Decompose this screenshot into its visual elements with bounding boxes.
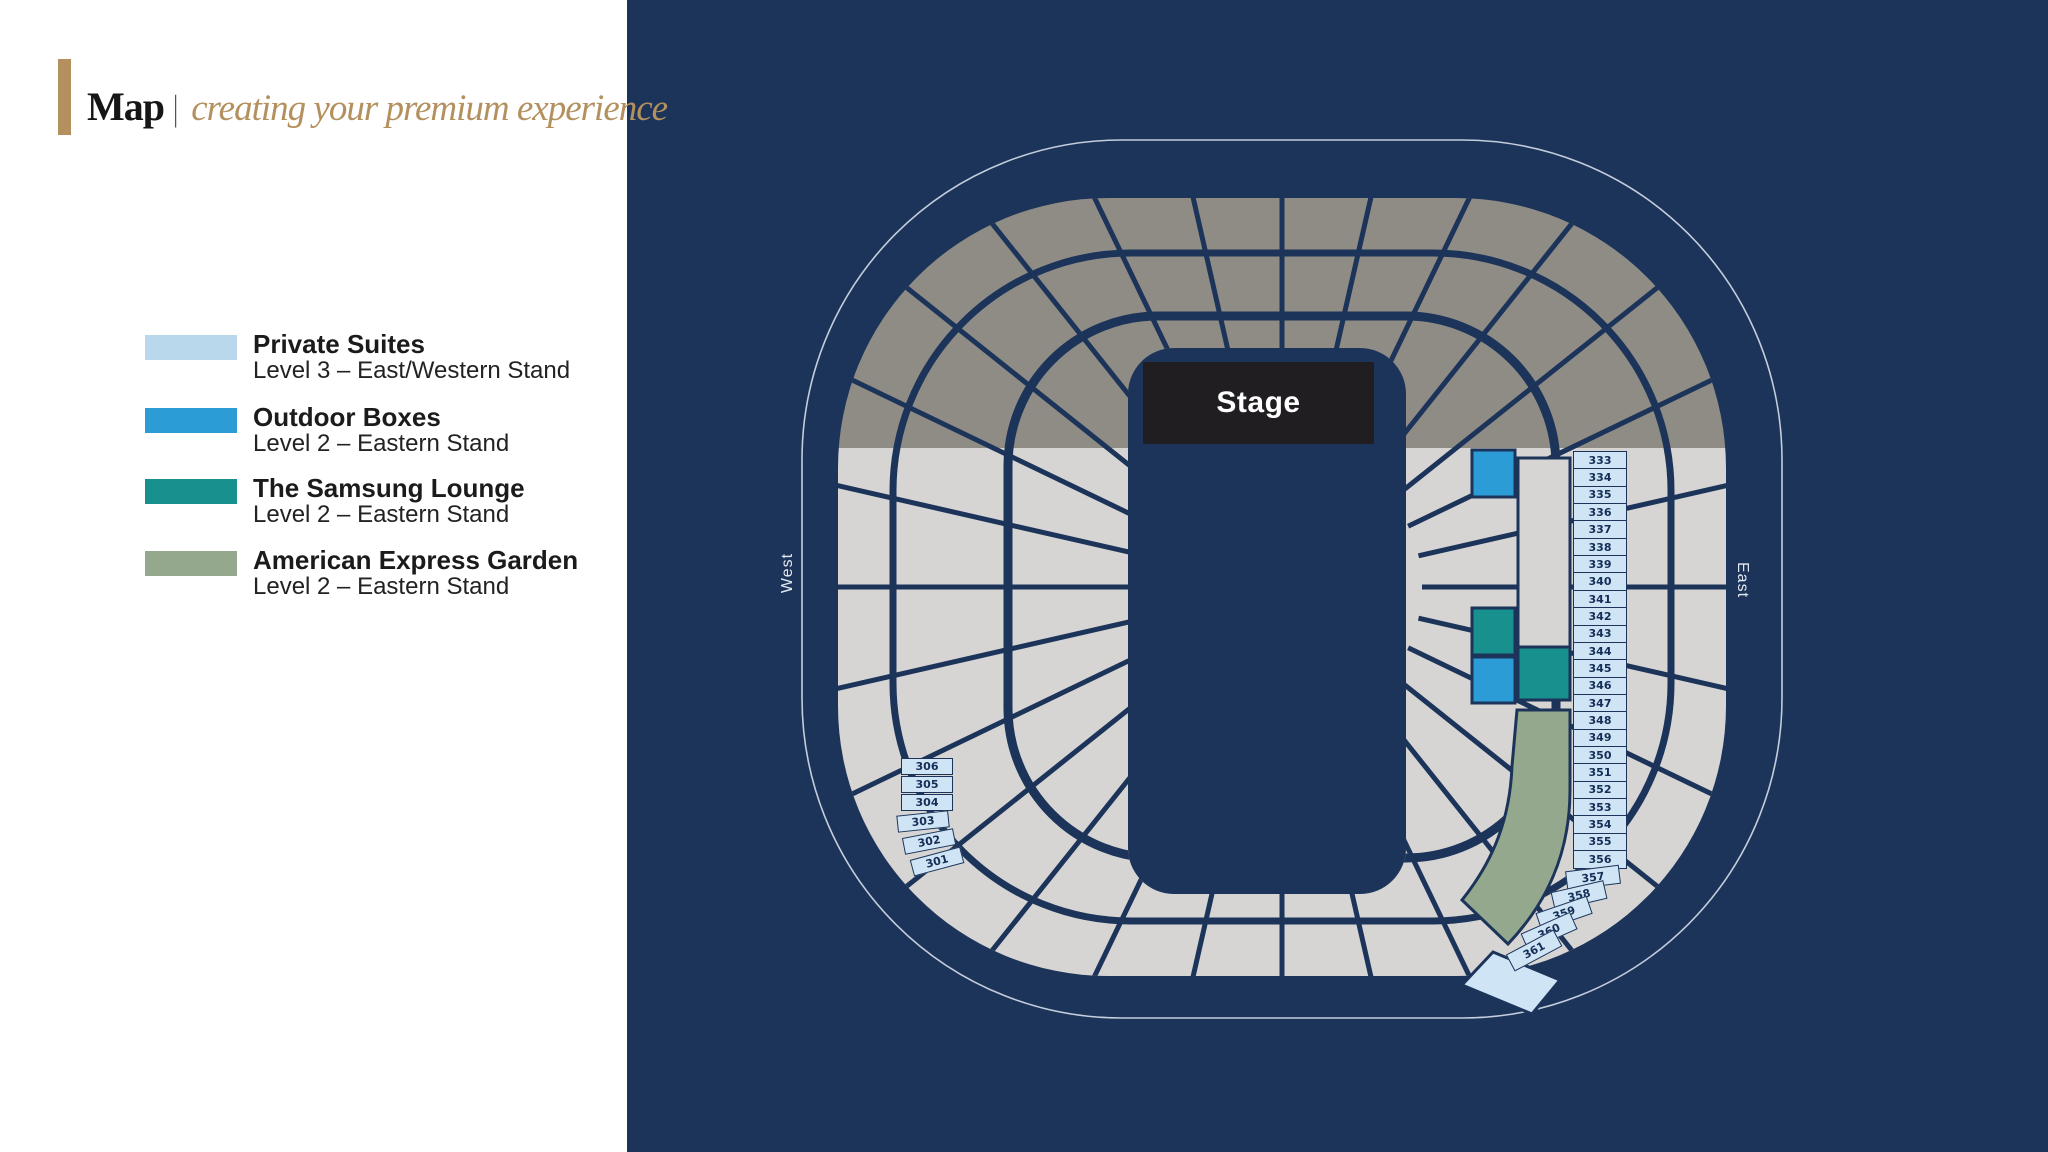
stage-label: Stage — [1216, 386, 1300, 420]
east-section-cell: 338 — [1573, 538, 1627, 557]
east-section-cell: 348 — [1573, 711, 1627, 730]
legend-item-detail: Level 2 – Eastern Stand — [253, 431, 509, 457]
legend-item: The Samsung LoungeLevel 2 – Eastern Stan… — [145, 477, 237, 504]
sidebar-panel: Map | creating your premium experience P… — [0, 0, 627, 1152]
legend-swatch — [145, 479, 237, 504]
east-section-cell: 352 — [1573, 781, 1627, 800]
east-section-cell: 333 — [1573, 451, 1627, 470]
legend-item-detail: Level 2 – Eastern Stand — [253, 574, 578, 600]
legend-item-detail: Level 2 – Eastern Stand — [253, 502, 525, 528]
west-label: West — [779, 553, 797, 593]
samsung-lounge-main — [1518, 647, 1570, 700]
gold-accent-bar — [58, 59, 71, 135]
legend-item-name: Outdoor Boxes — [253, 403, 509, 431]
legend-item-name: American Express Garden — [253, 546, 578, 574]
east-section-cell: 341 — [1573, 590, 1627, 609]
legend-swatch — [145, 335, 237, 360]
east-section-cell: 343 — [1573, 625, 1627, 644]
legend-item: American Express GardenLevel 2 – Eastern… — [145, 549, 237, 576]
legend-item-detail: Level 3 – East/Western Stand — [253, 358, 570, 384]
legend-item-name: The Samsung Lounge — [253, 474, 525, 502]
east-section-cell: 336 — [1573, 503, 1627, 522]
outdoor-box-upper — [1472, 450, 1515, 497]
legend-swatch — [145, 551, 237, 576]
east-section-cell: 345 — [1573, 659, 1627, 678]
east-section-cell: 342 — [1573, 607, 1627, 626]
east-section-cell: 340 — [1573, 572, 1627, 591]
east-concourse-block — [1518, 458, 1570, 647]
east-section-cell: 349 — [1573, 729, 1627, 748]
west-section-cell: 304 — [901, 794, 953, 811]
east-section-cell: 335 — [1573, 486, 1627, 505]
samsung-lounge-inner — [1472, 608, 1515, 655]
east-section-cell: 351 — [1573, 763, 1627, 782]
legend-swatch — [145, 408, 237, 433]
page-header: Map | creating your premium experience — [58, 59, 667, 135]
title-divider: | — [173, 87, 177, 129]
west-section-cell: 305 — [901, 776, 953, 793]
page-tagline: creating your premium experience — [191, 87, 667, 130]
legend-item: Outdoor BoxesLevel 2 – Eastern Stand — [145, 406, 237, 433]
east-section-cell: 337 — [1573, 520, 1627, 539]
east-section-cell: 334 — [1573, 468, 1627, 487]
west-section-cell: 306 — [901, 758, 953, 775]
lower-stands-light — [700, 448, 1900, 1048]
east-section-cell: 353 — [1573, 798, 1627, 817]
east-section-cell: 347 — [1573, 694, 1627, 713]
page-title: Map — [87, 83, 164, 130]
east-section-cell: 355 — [1573, 833, 1627, 852]
east-section-cell: 350 — [1573, 746, 1627, 765]
east-section-cell: 339 — [1573, 555, 1627, 574]
east-section-cell: 354 — [1573, 815, 1627, 834]
outdoor-box-lower — [1472, 657, 1515, 703]
east-section-cell: 344 — [1573, 642, 1627, 661]
east-section-cell: 346 — [1573, 677, 1627, 696]
legend-item-name: Private Suites — [253, 330, 570, 358]
stage: Stage — [1143, 362, 1374, 444]
legend-item: Private SuitesLevel 3 – East/Western Sta… — [145, 333, 237, 360]
east-label: East — [1733, 562, 1751, 598]
